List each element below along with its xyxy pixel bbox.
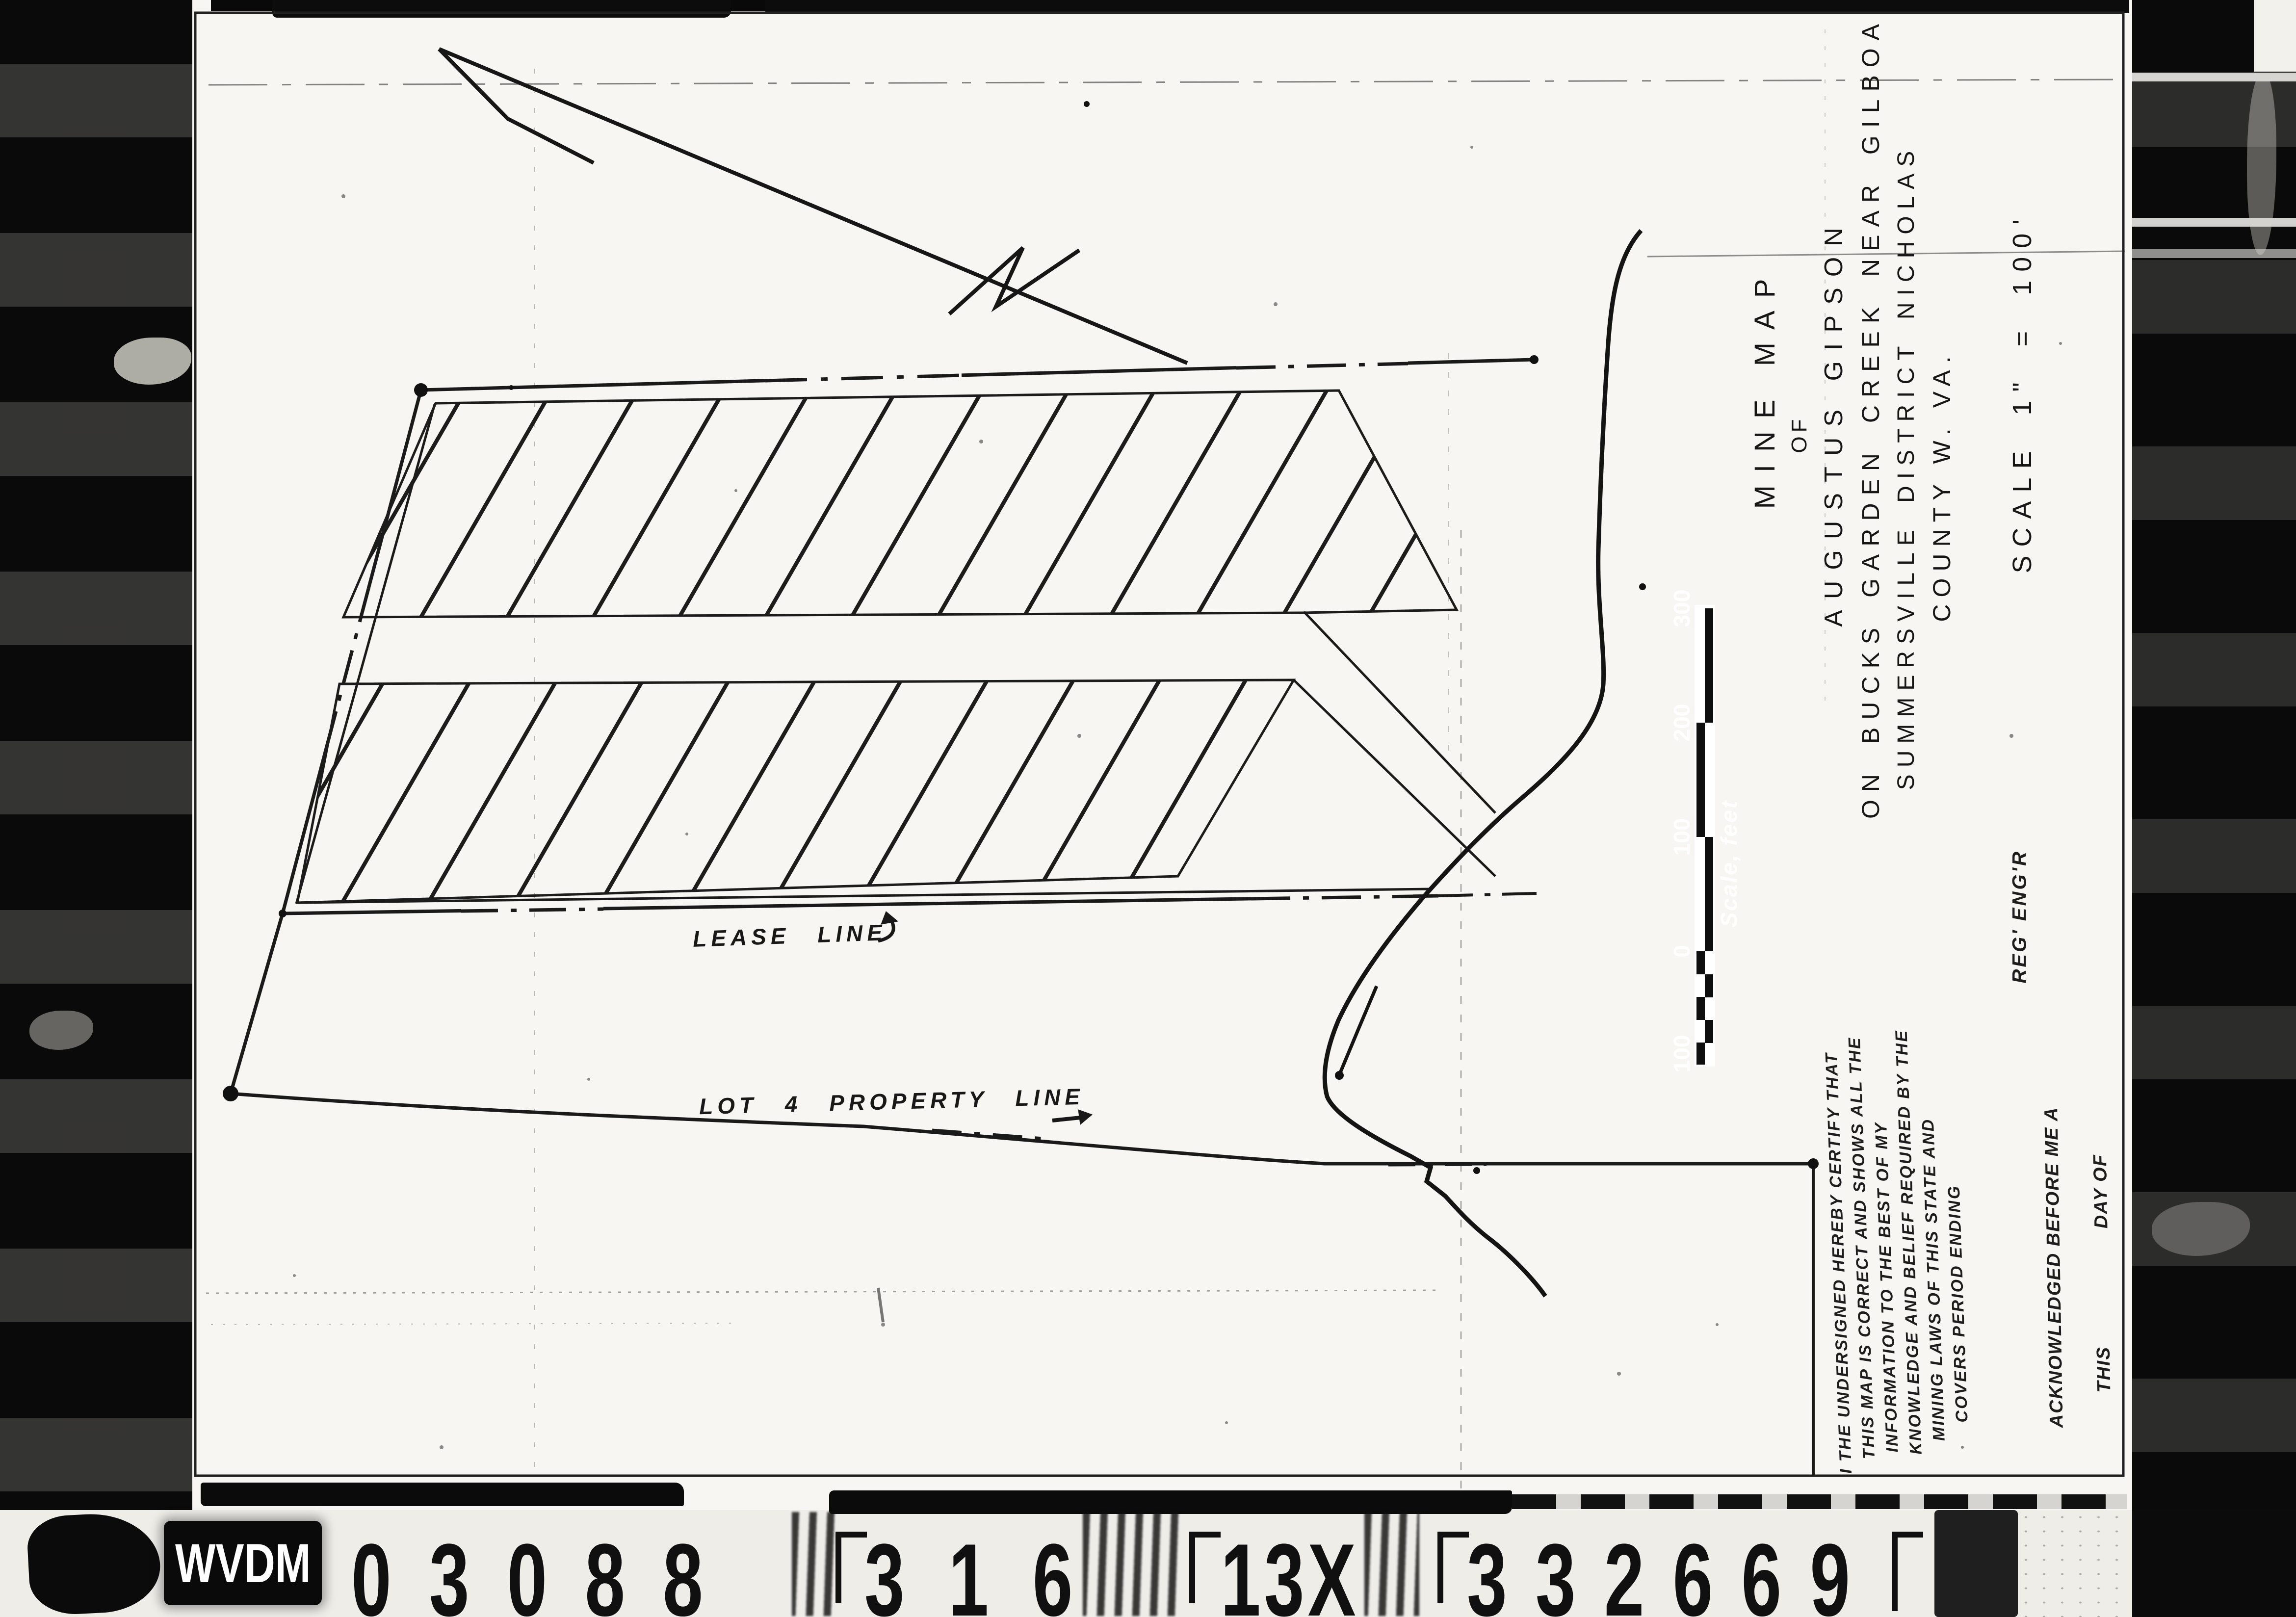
- reel-number: 03088: [351, 1529, 741, 1617]
- archive-code-box: WVDM: [164, 1521, 322, 1605]
- film-smudge: [1083, 1512, 1181, 1616]
- film-sprocket-mark: [2132, 73, 2296, 81]
- archive-code: WVDM: [175, 1532, 311, 1595]
- document-number: 332669: [1467, 1529, 1879, 1617]
- film-edge-left: [0, 0, 192, 1510]
- film-edge-right: [2132, 0, 2296, 1510]
- magnification: 13X: [1221, 1529, 1359, 1617]
- frame-number: 316: [864, 1529, 1117, 1617]
- film-smudge: [792, 1512, 839, 1616]
- frame-bracket: [1437, 1532, 1469, 1603]
- film-band: [829, 1490, 1512, 1514]
- film-band: [1512, 1494, 2127, 1509]
- frame-bracket: [835, 1532, 867, 1603]
- scan-artifacts: [0, 0, 2296, 1617]
- film-blotch: [114, 338, 191, 385]
- frame-bracket: [1189, 1532, 1221, 1603]
- film-sprocket-mark: [2132, 249, 2296, 258]
- paper-specks: [293, 146, 2062, 1449]
- film-speckle: [2017, 1510, 2132, 1617]
- film-notch: [2254, 0, 2296, 72]
- film-blotch: [2247, 74, 2276, 255]
- film-dark-block: [1934, 1510, 2018, 1617]
- film-smudge: [1364, 1512, 1419, 1616]
- film-band: [201, 1483, 684, 1506]
- frame-bracket: [1892, 1532, 1923, 1611]
- film-blotch: [29, 1011, 93, 1050]
- microfilm-scan: 300 200 100 0 100 Scale, feet MINE MAP O…: [0, 0, 2296, 1617]
- film-strip-right: [2132, 1510, 2296, 1617]
- film-blotch: [2152, 1202, 2250, 1256]
